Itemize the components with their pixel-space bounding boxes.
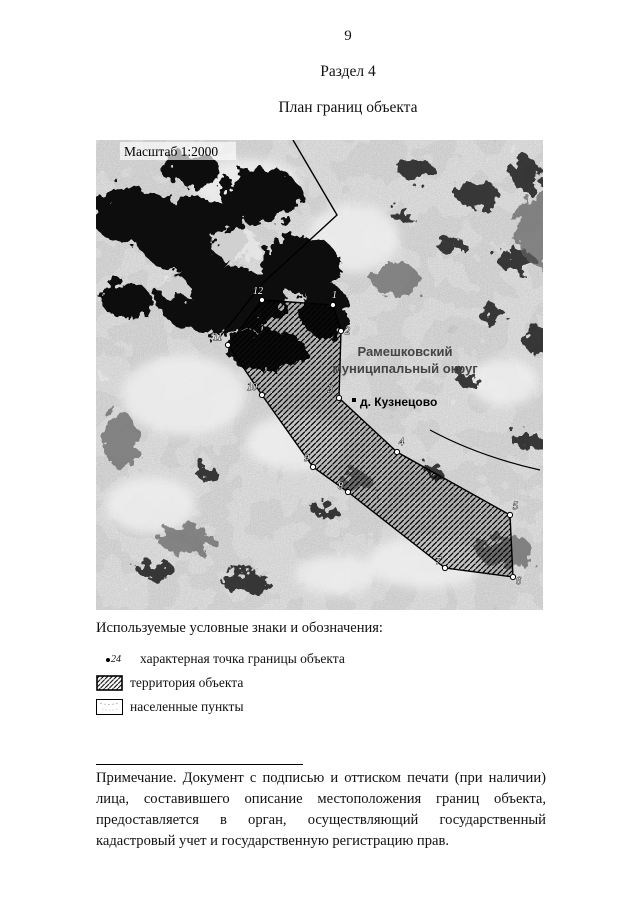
boundary-point-2 [338,328,343,333]
legend-item-settlement: населенные пункты [96,699,566,715]
region-label-line2: муниципальный округ [332,361,478,376]
boundary-point-label-4: 4 [399,437,404,448]
boundary-point-label-11: 11 [213,332,222,343]
boundary-point-label-9: 9 [304,453,309,464]
point-symbol-icon: 24 [106,654,140,665]
boundary-point-label-5: 5 [513,501,518,512]
territory-symbol-icon [96,675,130,691]
legend-settlement-label: населенные пункты [130,699,244,715]
footnote-text: Примечание. Документ с подписью и оттиск… [96,768,546,852]
map-scale-label: Масштаб 1:2000 [124,144,218,159]
boundary-point-3 [336,395,341,400]
legend-item-point: 24 характерная точка границы объекта [96,651,566,667]
boundary-point-label-1: 1 [332,290,337,301]
boundary-point-6 [510,574,515,579]
boundary-point-label-12: 12 [253,286,263,297]
legend-item-territory: территория объекта [96,675,566,691]
document-page: { "page": { "number": "9", "section": "Р… [0,0,640,905]
legend-territory-label: территория объекта [130,675,243,691]
boundary-point-8 [345,489,350,494]
footnote: Примечание. Документ с подписью и оттиск… [96,764,546,852]
point-sample-number: 24 [111,654,121,665]
boundary-point-label-10: 10 [247,382,257,393]
region-label-line1: Рамешковский [357,344,452,359]
settlement-label: д. Кузнецово [360,395,437,409]
boundary-point-10 [259,392,264,397]
settlement-symbol-icon [96,699,130,715]
boundary-point-11 [225,342,230,347]
boundary-point-4 [394,449,399,454]
boundary-point-label-3: 3 [327,384,333,395]
settlement-marker-dot [352,398,356,402]
boundary-point-1 [330,302,335,307]
boundary-point-label-2: 2 [345,326,350,337]
boundary-plan-map: 121234567891011 Масштаб 1:2000 Рамешковс… [96,140,543,610]
legend: Используемые условные знаки и обозначени… [96,620,566,723]
boundary-point-label-6: 6 [516,576,521,587]
map-image: 121234567891011 Масштаб 1:2000 Рамешковс… [96,140,543,610]
legend-point-label: характерная точка границы объекта [140,651,345,667]
boundary-point-5 [507,512,512,517]
page-number: 9 [96,28,600,45]
boundary-point-12 [259,297,264,302]
page-title: План границ объекта [96,99,600,117]
point-dot-icon [106,658,110,662]
section-heading: Раздел 4 [96,63,600,81]
footnote-rule [96,764,303,765]
boundary-point-7 [442,565,447,570]
boundary-point-label-8: 8 [338,481,343,492]
legend-title: Используемые условные знаки и обозначени… [96,620,566,637]
boundary-point-9 [310,464,315,469]
